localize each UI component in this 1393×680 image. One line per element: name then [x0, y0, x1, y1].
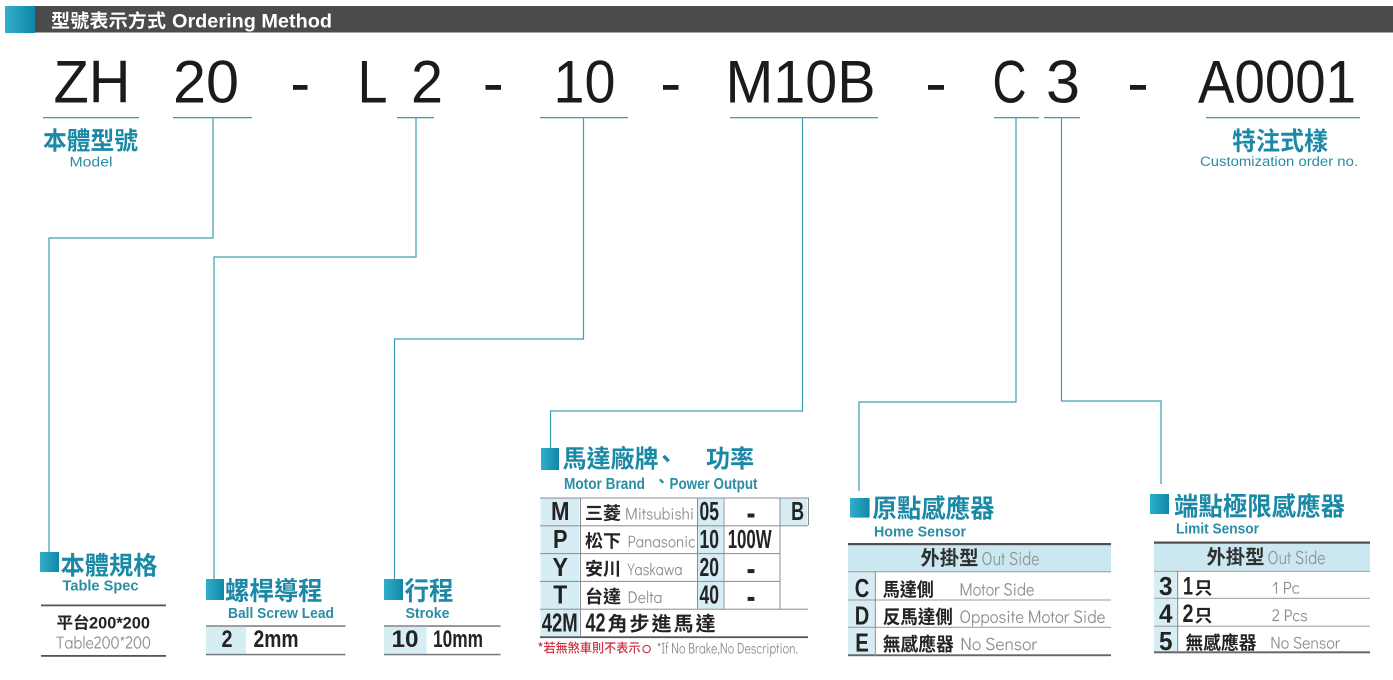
svg-text:40: 40 — [700, 582, 720, 610]
svg-text:05: 05 — [700, 498, 720, 526]
svg-text:Ordering Method: Ordering Method — [172, 12, 332, 33]
svg-text:P: P — [553, 526, 568, 554]
svg-text:Table Spec: Table Spec — [63, 578, 139, 595]
svg-text:Customization order no.: Customization order no. — [1200, 154, 1358, 169]
svg-text:C: C — [855, 573, 870, 603]
svg-text:2: 2 — [1183, 600, 1194, 628]
svg-text:M10B: M10B — [726, 49, 876, 116]
svg-text:Stroke: Stroke — [406, 606, 450, 622]
svg-text:T: T — [553, 582, 567, 610]
svg-text:3: 3 — [1046, 49, 1080, 116]
svg-text:20: 20 — [700, 554, 720, 582]
svg-text:4: 4 — [1159, 598, 1173, 628]
svg-text:20: 20 — [173, 49, 239, 116]
svg-text:Home Sensor: Home Sensor — [874, 524, 966, 541]
svg-text:Y: Y — [552, 554, 568, 582]
svg-text:5: 5 — [1159, 626, 1173, 656]
svg-text:10: 10 — [700, 526, 720, 554]
svg-text:10: 10 — [392, 626, 419, 653]
svg-text:1: 1 — [1183, 572, 1193, 600]
svg-text:2: 2 — [222, 626, 233, 653]
svg-text:B: B — [791, 498, 804, 526]
svg-text:3: 3 — [1159, 571, 1173, 601]
svg-text:Motor Brand: Motor Brand — [564, 476, 645, 493]
svg-text:L: L — [358, 49, 388, 116]
svg-text:M: M — [551, 498, 570, 526]
svg-text:C: C — [993, 49, 1027, 116]
svg-text:Limit Sensor: Limit Sensor — [1176, 521, 1259, 538]
svg-text:A0001: A0001 — [1198, 49, 1356, 116]
svg-text:10: 10 — [554, 49, 616, 116]
svg-text:100W: 100W — [728, 526, 773, 554]
svg-text:Power Output: Power Output — [670, 476, 759, 493]
svg-text:2: 2 — [411, 49, 443, 116]
svg-text:E: E — [855, 628, 869, 658]
svg-text:200*200: 200*200 — [89, 614, 150, 633]
svg-text:42M: 42M — [542, 609, 578, 637]
svg-text:2mm: 2mm — [254, 626, 299, 653]
svg-text:10mm: 10mm — [433, 626, 483, 653]
svg-text:Model: Model — [70, 155, 113, 170]
svg-text:ZH: ZH — [54, 49, 131, 116]
svg-text:42: 42 — [586, 609, 606, 637]
svg-text:D: D — [855, 600, 870, 630]
svg-text:Ball Screw Lead: Ball Screw Lead — [228, 606, 334, 622]
